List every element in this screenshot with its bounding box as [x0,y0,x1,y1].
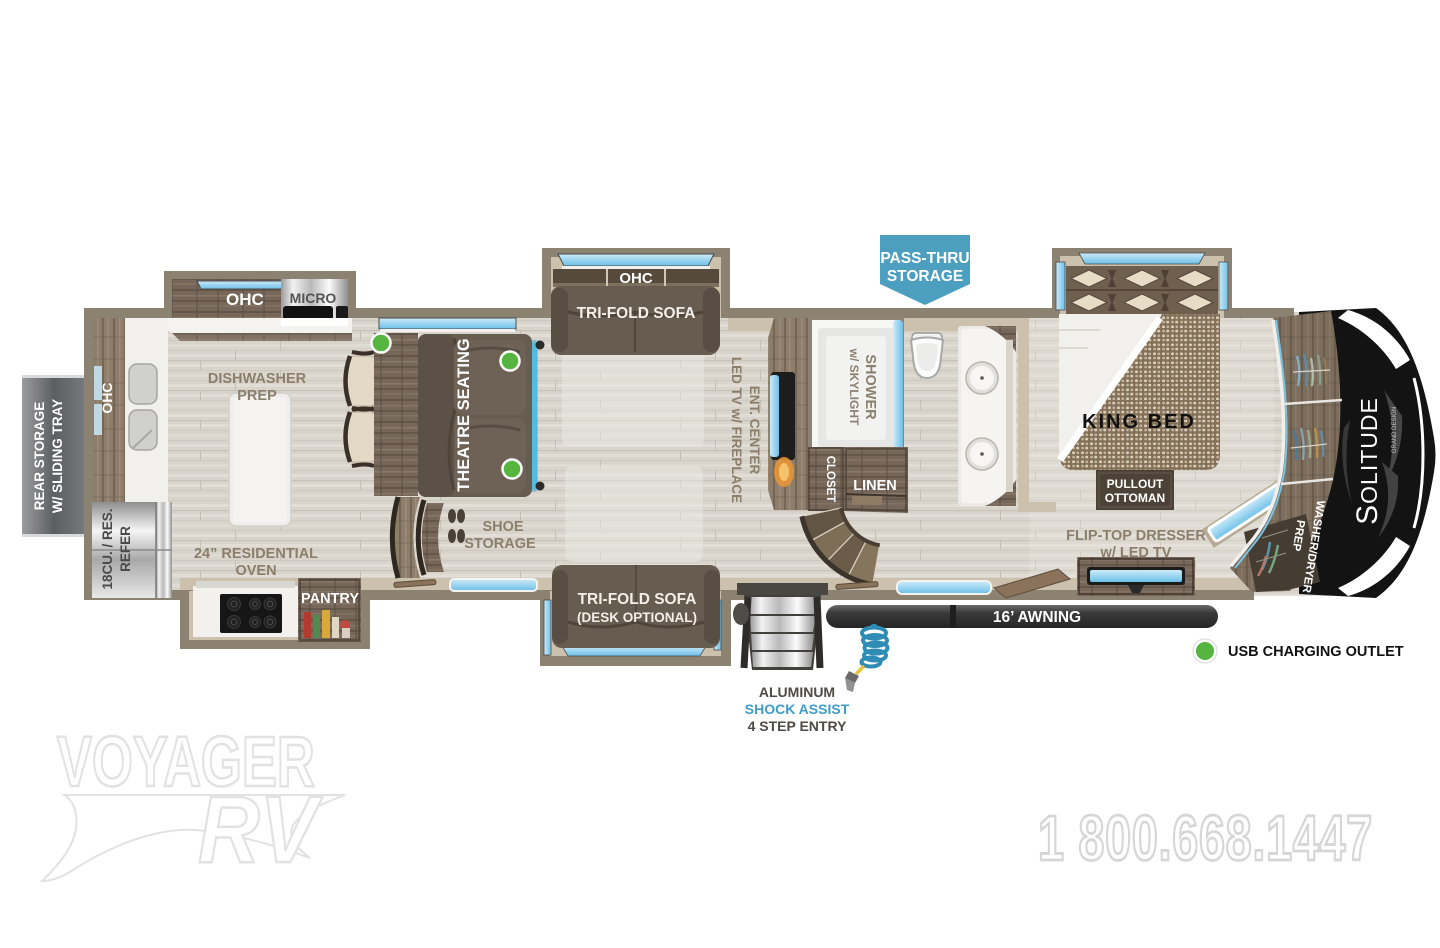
svg-text:SHOE: SHOE [482,519,523,535]
svg-text:TRI-FOLD SOFA: TRI-FOLD SOFA [578,591,697,608]
svg-text:PREP: PREP [237,388,277,404]
svg-text:OHC: OHC [619,270,653,287]
svg-text:18CU. / RES.: 18CU. / RES. [100,508,115,589]
svg-text:w/ SKYLIGHT: w/ SKYLIGHT [847,348,861,426]
svg-text:PULLOUT: PULLOUT [1107,477,1164,491]
svg-text:PANTRY: PANTRY [301,591,359,607]
svg-text:OHC: OHC [99,382,115,413]
svg-text:OHC: OHC [226,290,264,309]
svg-text:STORAGE: STORAGE [464,536,536,552]
svg-text:TRI-FOLD SOFA: TRI-FOLD SOFA [577,305,696,322]
svg-text:REFER: REFER [118,526,133,572]
svg-text:THEATRE SEATING: THEATRE SEATING [455,338,473,491]
svg-text:4 STEP ENTRY: 4 STEP ENTRY [748,718,847,734]
svg-text:SHOWER: SHOWER [862,354,878,420]
svg-text:OVEN: OVEN [235,563,276,579]
svg-text:ALUMINUM: ALUMINUM [759,684,835,700]
svg-text:USB CHARGING OUTLET: USB CHARGING OUTLET [1228,644,1404,660]
svg-text:GRAND DESIGN: GRAND DESIGN [1392,407,1398,453]
svg-text:16’ AWNING: 16’ AWNING [993,609,1081,626]
svg-text:(DESK OPTIONAL): (DESK OPTIONAL) [577,610,697,625]
svg-text:SHOCK ASSIST: SHOCK ASSIST [745,701,850,717]
svg-text:FLIP-TOP DRESSER: FLIP-TOP DRESSER [1066,528,1206,544]
svg-text:CLOSET: CLOSET [824,456,836,503]
svg-text:SOLITUDE: SOLITUDE [1351,397,1384,525]
svg-text:LINEN: LINEN [853,478,897,494]
svg-text:W/ SLIDING TRAY: W/ SLIDING TRAY [50,399,65,513]
svg-text:1 800.668.1447: 1 800.668.1447 [1038,802,1373,874]
svg-text:OTTOMAN: OTTOMAN [1105,491,1165,505]
svg-text:STORAGE: STORAGE [887,268,963,285]
svg-text:LED TV w/ FIREPLACE: LED TV w/ FIREPLACE [729,357,744,503]
svg-text:24” RESIDENTIAL: 24” RESIDENTIAL [194,546,318,562]
svg-text:REAR STORAGE: REAR STORAGE [32,402,47,511]
svg-text:PASS-THRU: PASS-THRU [880,250,969,267]
svg-text:KING BED: KING BED [1082,411,1196,433]
svg-text:MICRO: MICRO [290,290,337,306]
svg-text:RV: RV [198,777,323,883]
svg-text:ENT. CENTER: ENT. CENTER [747,386,762,475]
svg-text:DISHWASHER: DISHWASHER [208,371,307,387]
